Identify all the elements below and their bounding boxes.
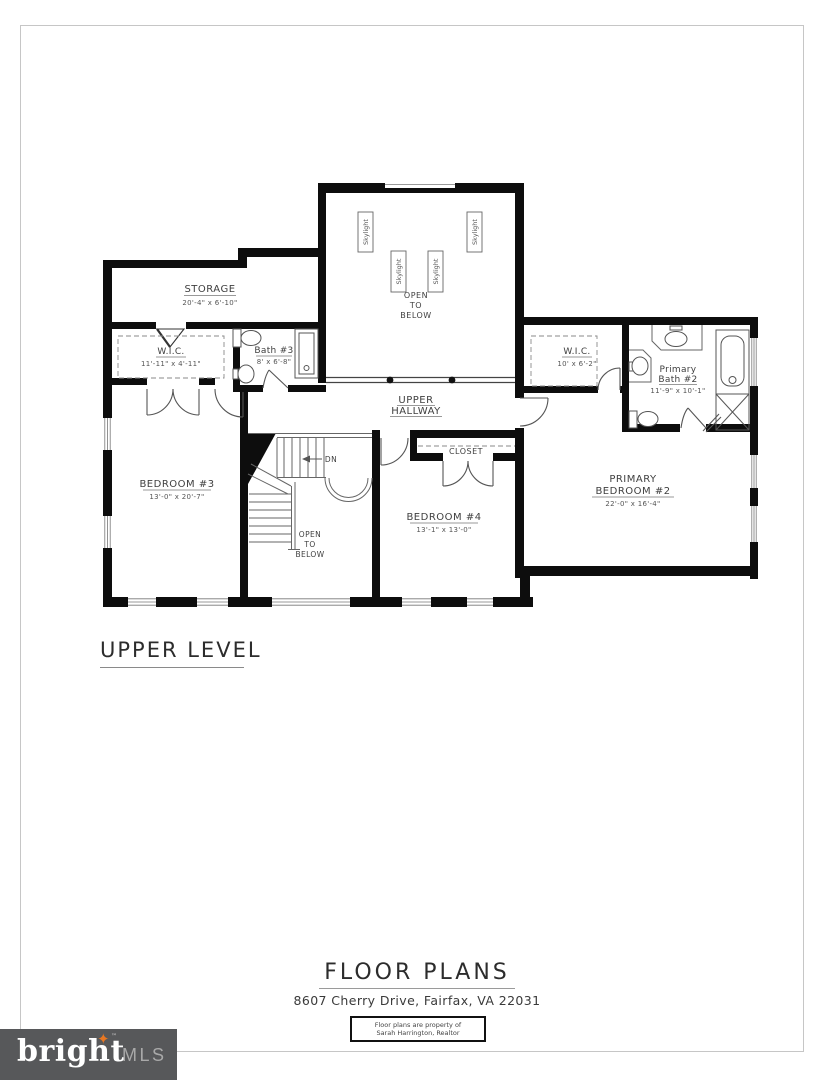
document-title: FLOOR PLANS [0, 960, 834, 985]
title-block: FLOOR PLANS 8607 Cherry Drive, Fairfax, … [0, 960, 834, 1008]
document-title-underline [319, 988, 515, 989]
level-title-underline [100, 667, 244, 668]
level-title: UPPER LEVEL [100, 638, 262, 662]
disclaimer-box: Floor plans are property of Sarah Harrin… [350, 1016, 486, 1042]
disclaimer-line1: Floor plans are property of [354, 1021, 482, 1029]
bright-mls-logo: bright ✦ ™ MLS [0, 1029, 177, 1080]
page-border [20, 25, 804, 1052]
logo-mls-text: MLS [122, 1045, 167, 1066]
logo-sparkle-icon: ✦ [97, 1030, 110, 1048]
property-address: 8607 Cherry Drive, Fairfax, VA 22031 [0, 993, 834, 1008]
disclaimer-line2: Sarah Harrington, Realtor [354, 1029, 482, 1037]
logo-trademark: ™ [111, 1033, 117, 1040]
floor-plan-page: DN OPEN TO BELOW [0, 0, 834, 1080]
